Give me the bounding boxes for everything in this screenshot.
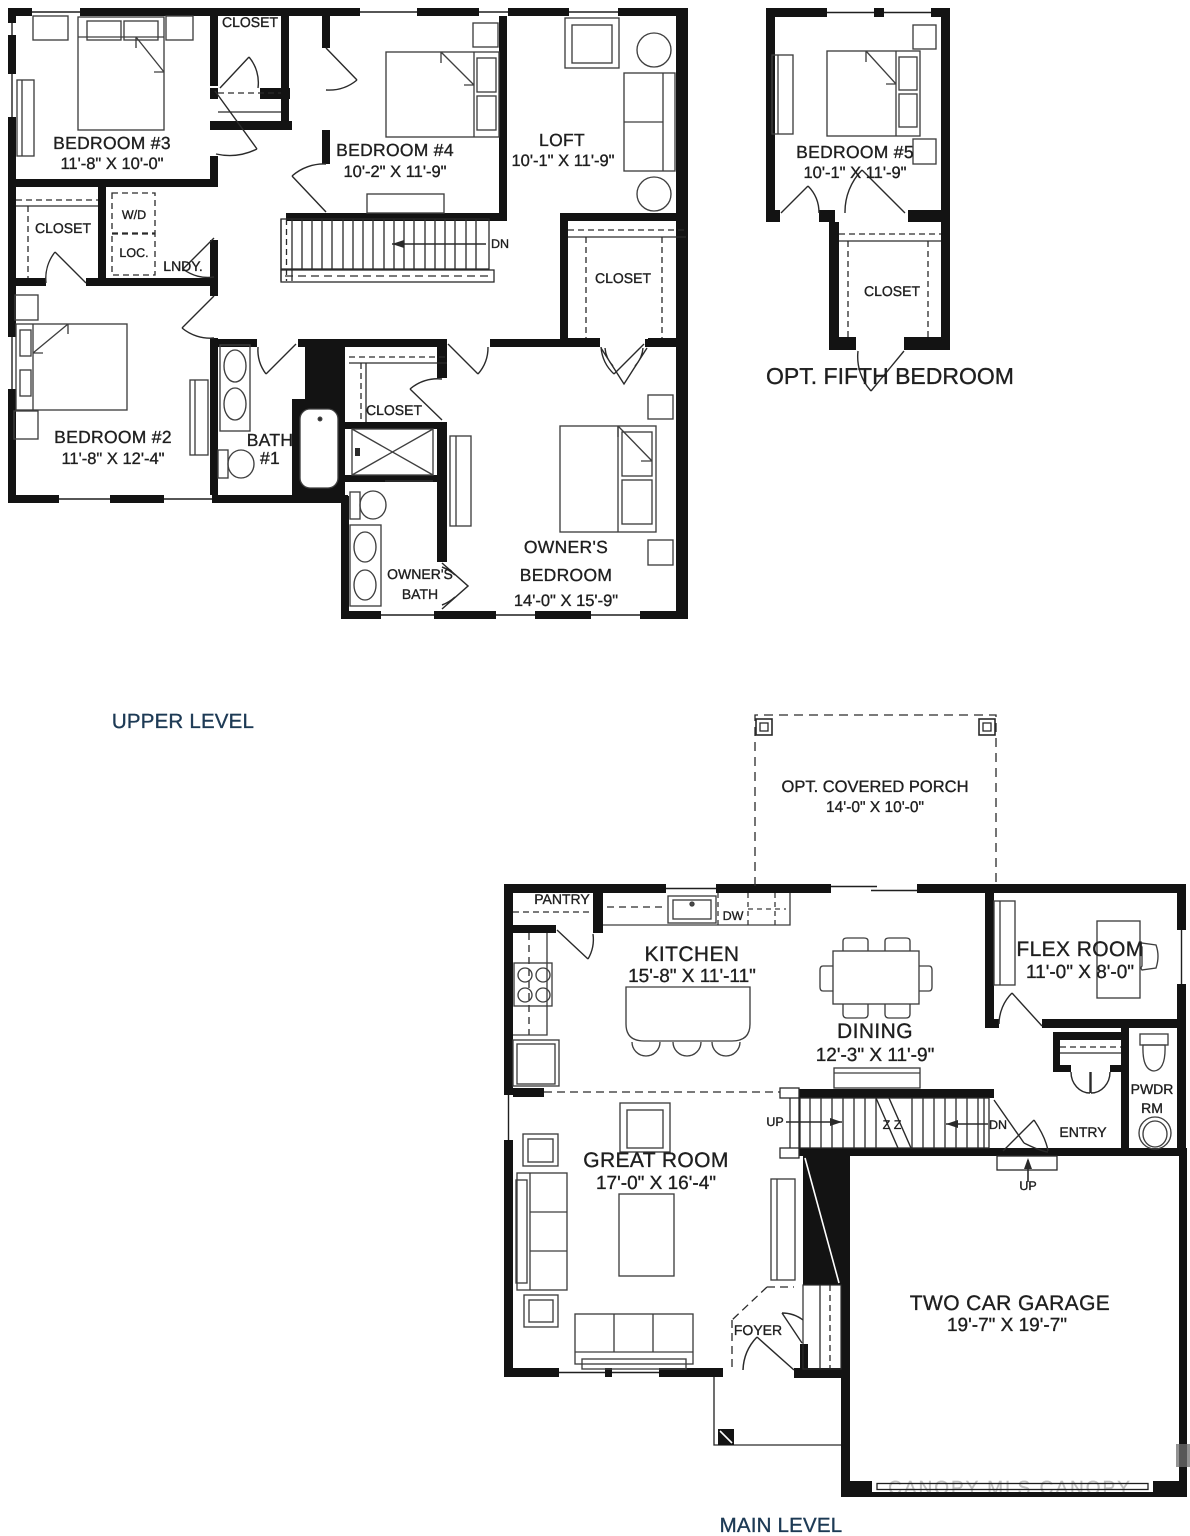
svg-text:CLOSET: CLOSET	[35, 220, 91, 236]
svg-text:W/D: W/D	[122, 208, 146, 222]
svg-text:OWNER'S: OWNER'S	[524, 537, 608, 557]
svg-text:LOFT: LOFT	[539, 130, 585, 150]
svg-text:OPT. FIFTH BEDROOM: OPT. FIFTH BEDROOM	[766, 363, 1014, 389]
svg-text:BEDROOM #4: BEDROOM #4	[336, 140, 454, 160]
svg-text:ENTRY: ENTRY	[1059, 1124, 1107, 1140]
svg-text:OPT. COVERED PORCH: OPT. COVERED PORCH	[781, 778, 968, 796]
svg-text:11'-8" X 10'-0": 11'-8" X 10'-0"	[60, 155, 163, 173]
svg-text:UP: UP	[1019, 1179, 1036, 1193]
svg-text:14'-0" X 15'-9": 14'-0" X 15'-9"	[514, 592, 618, 610]
svg-text:CANOPY MLS CANOPY: CANOPY MLS CANOPY	[888, 1478, 1132, 1499]
svg-text:RM: RM	[1141, 1100, 1163, 1116]
svg-text:OWNER'S: OWNER'S	[387, 566, 453, 582]
svg-text:UPPER LEVEL: UPPER LEVEL	[112, 710, 254, 733]
svg-text:DN: DN	[989, 1118, 1007, 1132]
svg-text:DN: DN	[491, 237, 509, 251]
svg-text:DW: DW	[723, 909, 744, 923]
svg-text:PWDR: PWDR	[1131, 1081, 1174, 1097]
svg-text:GREAT ROOM: GREAT ROOM	[583, 1149, 729, 1172]
svg-text:10'-2" X 11'-9": 10'-2" X 11'-9"	[343, 163, 446, 181]
svg-text:BEDROOM #5: BEDROOM #5	[796, 142, 914, 162]
svg-text:CLOSET: CLOSET	[595, 270, 651, 286]
svg-text:17'-0" X 16'-4": 17'-0" X 16'-4"	[596, 1173, 716, 1194]
svg-text:15'-8" X 11'-11": 15'-8" X 11'-11"	[628, 966, 756, 987]
svg-text:FOYER: FOYER	[734, 1322, 782, 1338]
svg-text:FLEX ROOM: FLEX ROOM	[1016, 938, 1143, 961]
svg-text:10'-1" X 11'-9": 10'-1" X 11'-9"	[803, 164, 906, 182]
svg-text:BEDROOM #2: BEDROOM #2	[54, 427, 172, 447]
svg-text:12'-3" X 11'-9": 12'-3" X 11'-9"	[816, 1045, 935, 1066]
svg-text:11'-0" X 8'-0": 11'-0" X 8'-0"	[1026, 962, 1134, 983]
svg-text:BEDROOM #3: BEDROOM #3	[53, 133, 171, 153]
svg-text:CLOSET: CLOSET	[864, 283, 920, 299]
svg-text:DINING: DINING	[837, 1020, 913, 1043]
svg-text:BATH: BATH	[402, 586, 438, 602]
svg-text:19'-7" X 19'-7": 19'-7" X 19'-7"	[947, 1315, 1067, 1336]
svg-text:LOC.: LOC.	[119, 246, 148, 260]
svg-text:TWO CAR GARAGE: TWO CAR GARAGE	[910, 1292, 1110, 1315]
svg-text:CLOSET: CLOSET	[366, 402, 422, 418]
svg-text:BEDROOM: BEDROOM	[520, 565, 613, 585]
svg-text:#1: #1	[260, 448, 280, 468]
svg-text:14'-0" X 10'-0": 14'-0" X 10'-0"	[826, 799, 924, 816]
svg-text:PANTRY: PANTRY	[534, 891, 590, 907]
svg-text:10'-1" X 11'-9": 10'-1" X 11'-9"	[511, 152, 614, 170]
svg-text:CLOSET: CLOSET	[222, 14, 278, 30]
svg-text:Z Z: Z Z	[883, 1118, 902, 1132]
svg-text:BATH: BATH	[247, 430, 294, 450]
svg-text:UP: UP	[766, 1115, 783, 1129]
svg-text:KITCHEN: KITCHEN	[645, 943, 740, 966]
svg-text:LNDY.: LNDY.	[163, 258, 202, 274]
svg-text:11'-8" X 12'-4": 11'-8" X 12'-4"	[61, 450, 164, 468]
svg-text:MAIN LEVEL: MAIN LEVEL	[720, 1514, 843, 1536]
